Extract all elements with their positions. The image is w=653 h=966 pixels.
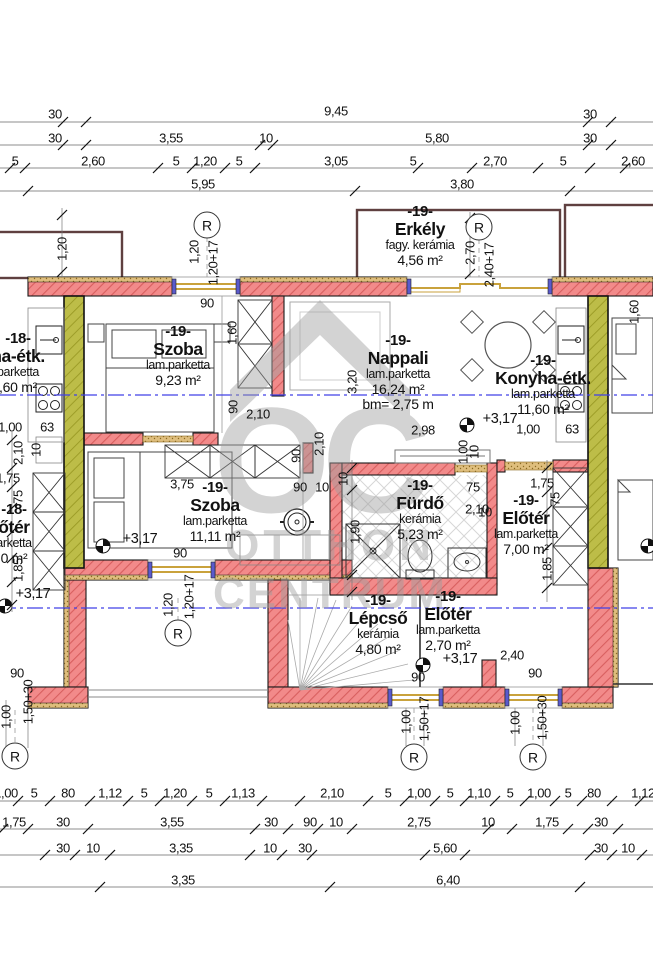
dim-label: 5,95 xyxy=(191,177,215,192)
room-number: -19- xyxy=(386,204,455,220)
room-finish: kerámia xyxy=(349,628,408,642)
room-finish: fagy. kerámia xyxy=(386,239,455,253)
dim-label: 5 xyxy=(173,154,180,169)
room-height: bm= 2,75 m xyxy=(362,397,433,412)
room-name: Erkély xyxy=(386,220,455,239)
dim-label: 90 xyxy=(226,400,241,414)
room-number: -19- xyxy=(396,478,444,494)
dim-label: 1,50+30 xyxy=(21,680,36,725)
dim-label: 3,75 xyxy=(170,477,194,492)
dim-label: 30 xyxy=(48,107,62,122)
dim-label: 3,05 xyxy=(324,154,348,169)
dim-label: 75 xyxy=(11,490,26,504)
dim-label: 1,00 xyxy=(407,786,431,801)
room-name: Lépcső xyxy=(349,609,408,628)
room-name: őtér xyxy=(0,518,32,537)
dim-label: 5 xyxy=(12,154,19,169)
dim-label: 3,35 xyxy=(171,873,195,888)
dim-label: 1,50+17 xyxy=(417,697,432,742)
room-area: 11,11 m² xyxy=(183,529,247,544)
grid-marker: R xyxy=(2,743,29,770)
dim-label: +3,17 xyxy=(443,651,478,667)
dim-label: 80 xyxy=(587,786,601,801)
dim-label: 2,10 xyxy=(320,786,344,801)
dim-label: 2,40 xyxy=(500,648,524,663)
room-number: -19- xyxy=(416,589,480,605)
dim-label: 10 xyxy=(478,505,492,520)
room-label-furdo: -19- Fürdő kerámia 5,23 m² xyxy=(396,478,444,542)
balcony-outlines xyxy=(0,205,653,278)
room-area: 4,56 m² xyxy=(386,253,455,268)
dim-label: 3,55 xyxy=(160,815,184,830)
dim-label: 90 xyxy=(10,666,24,681)
dim-label: 3,20 xyxy=(345,370,360,394)
dim-label: 1,75 xyxy=(535,815,559,830)
dim-label: 30 xyxy=(594,815,608,830)
dim-label: 5 xyxy=(560,154,567,169)
dim-label: 6,40 xyxy=(436,873,460,888)
dim-label: 1,85 xyxy=(540,557,555,581)
dim-label: 3,55 xyxy=(159,131,183,146)
dim-label: 30 xyxy=(264,815,278,830)
dim-label: 30 xyxy=(594,841,608,856)
room-finish: arketta xyxy=(0,537,32,551)
dim-label: 30 xyxy=(298,841,312,856)
grid-marker: R xyxy=(401,744,428,771)
dim-label: 3,35 xyxy=(169,841,193,856)
room-finish: kerámia xyxy=(396,513,444,527)
dim-label: 2,70 xyxy=(483,154,507,169)
dim-label: 1,00 xyxy=(527,786,551,801)
room-finish: lam.parketta xyxy=(362,368,433,382)
room-name: ha-étk. xyxy=(0,347,45,366)
room-finish: lam.parketta xyxy=(146,359,210,373)
dim-label: 1,00 xyxy=(508,711,523,735)
dim-label: 90 xyxy=(173,546,187,561)
dim-label: 9,45 xyxy=(324,104,348,119)
dim-label: 5,80 xyxy=(425,131,449,146)
dim-label: 10 xyxy=(259,131,273,146)
dim-label: 90 xyxy=(293,480,307,495)
dim-label: 63 xyxy=(565,422,579,437)
dim-label: 1,00 xyxy=(0,705,14,729)
room-area: 5,23 m² xyxy=(396,527,444,542)
dim-label: 80 xyxy=(61,786,75,801)
dim-label: 2,60 xyxy=(81,154,105,169)
room-number: -18- xyxy=(0,331,45,347)
dim-label: 5 xyxy=(206,786,213,801)
floorplan-canvas: OC OTTHON CENTRUM -19- Erkély fagy. kerá… xyxy=(0,0,653,966)
dim-label: 10 xyxy=(336,472,351,486)
dim-label: 1,85 xyxy=(11,558,26,582)
room-finish: lam.parketta xyxy=(416,624,480,638)
dim-label: 1,00 xyxy=(399,710,414,734)
dim-label: 10 xyxy=(315,480,329,495)
dim-label: 2,75 xyxy=(407,815,431,830)
room-number: -19- xyxy=(495,353,591,369)
dim-label: 10 xyxy=(481,815,495,830)
dim-label: 1,12 xyxy=(98,786,122,801)
dim-label: 10 xyxy=(263,841,277,856)
dim-label: 2,98 xyxy=(411,423,435,438)
dim-label: 5 xyxy=(410,154,417,169)
dim-label: +3,17 xyxy=(16,586,51,602)
room-label-nappali: -19- Nappali lam.parketta 16,24 m² bm= 2… xyxy=(362,333,433,412)
room-label-lepcso: -19- Lépcső kerámia 4,80 m² xyxy=(349,593,408,657)
dim-label: 5 xyxy=(31,786,38,801)
dim-label: 10 xyxy=(467,445,482,459)
dim-label: 1,13 xyxy=(231,786,255,801)
dim-label: 90 xyxy=(200,296,214,311)
dim-label: 2,70 xyxy=(463,241,478,265)
dim-label: 5 xyxy=(236,154,243,169)
dim-label: 1,90 xyxy=(348,520,363,544)
room-finish: lam.parketta xyxy=(495,388,591,402)
dim-label: 1,00 xyxy=(0,786,18,801)
dim-label: 5 xyxy=(565,786,572,801)
dim-label: 1,20 xyxy=(55,237,70,261)
dim-label: 1,20 xyxy=(161,593,176,617)
room-number: -19- xyxy=(349,593,408,609)
room-name: Előtér xyxy=(416,605,480,624)
dim-label: 90 xyxy=(303,815,317,830)
room-name: Konyha-étk. xyxy=(495,369,591,388)
room-area: 7,00 m² xyxy=(494,542,558,557)
room-label-erkely: -19- Erkély fagy. kerámia 4,56 m² xyxy=(386,204,455,268)
dim-label: 5 xyxy=(507,786,514,801)
dim-label: 30 xyxy=(583,107,597,122)
room-area: 9,23 m² xyxy=(146,373,210,388)
dim-label: 30 xyxy=(56,841,70,856)
room-label-neighbor-konyha: -18- ha-étk. parketta ,60 m² xyxy=(0,331,45,395)
dim-label: 1,75 xyxy=(530,476,554,491)
dim-label: 1,20+17 xyxy=(206,241,221,286)
dim-label: 90 xyxy=(528,666,542,681)
room-finish: lam.parketta xyxy=(183,515,247,529)
grid-marker: R xyxy=(194,212,221,239)
grid-marker: R xyxy=(165,620,192,647)
dim-label: 1,60 xyxy=(225,321,240,345)
dim-label: 1,75 xyxy=(2,815,26,830)
dim-label: 30 xyxy=(583,131,597,146)
dim-label: 2,40+17 xyxy=(482,243,497,288)
dim-label: 3,80 xyxy=(450,177,474,192)
grid-marker: R xyxy=(520,744,547,771)
dim-label: 2,10 xyxy=(11,441,26,465)
dim-label: 1,00 xyxy=(0,420,22,435)
dim-label: 2,10 xyxy=(312,432,327,456)
dim-label: 90 xyxy=(289,449,304,463)
room-label-szoba-1: -19- Szoba lam.parketta 9,23 m² xyxy=(146,324,210,388)
room-name: Előtér xyxy=(494,509,558,528)
dim-label: 1,20+17 xyxy=(182,575,197,620)
room-label-konyha: -19- Konyha-étk. lam.parketta 11,60 m² xyxy=(495,353,591,417)
room-number: -19- xyxy=(362,333,433,349)
room-name: Nappali xyxy=(362,349,433,368)
room-finish: lam.parketta xyxy=(494,528,558,542)
dim-label: +3,17 xyxy=(123,531,158,547)
room-number: -18- xyxy=(0,502,32,518)
room-area: 16,24 m² xyxy=(362,382,433,397)
dim-label: 2,10 xyxy=(246,407,270,422)
dim-label: 1,12 xyxy=(631,786,653,801)
grid-marker: R xyxy=(466,214,493,241)
room-finish: parketta xyxy=(0,366,45,380)
room-label-eloter-2: -19- Előtér lam.parketta 2,70 m² xyxy=(416,589,480,653)
dim-label: +3,17 xyxy=(483,411,518,427)
room-name: Fürdő xyxy=(396,494,444,513)
dim-label: 10 xyxy=(29,443,44,457)
dim-label: 1,10 xyxy=(467,786,491,801)
dim-label: 5 xyxy=(447,786,454,801)
dim-label: 10 xyxy=(621,841,635,856)
dim-label: 75 xyxy=(548,492,563,506)
room-label-neighbor-eloter: -18- őtér arketta 0 m² xyxy=(0,502,32,566)
room-name: Szoba xyxy=(146,340,210,359)
dim-label: 63 xyxy=(40,420,54,435)
dim-label: 30 xyxy=(48,131,62,146)
dim-label: 1,20 xyxy=(193,154,217,169)
dim-label: 10 xyxy=(86,841,100,856)
dim-label: 90 xyxy=(411,670,425,685)
dim-label: 5 xyxy=(141,786,148,801)
dim-label: 1,00 xyxy=(516,422,540,437)
room-number: -19- xyxy=(146,324,210,340)
dim-label: 1,20 xyxy=(163,786,187,801)
dim-label: 10 xyxy=(329,815,343,830)
dim-label: 1,50+30 xyxy=(535,696,550,741)
dim-label: 1,75 xyxy=(0,471,20,486)
dim-label: 2,60 xyxy=(621,154,645,169)
room-area: ,60 m² xyxy=(0,380,45,395)
dim-label: 5,60 xyxy=(433,841,457,856)
dim-label: 1,60 xyxy=(627,300,642,324)
dim-label: 1,20 xyxy=(187,240,202,264)
dim-label: 5 xyxy=(385,786,392,801)
watermark-line2: CENTRUM xyxy=(213,569,447,618)
dim-label: 30 xyxy=(56,815,70,830)
room-name: Szoba xyxy=(183,496,247,515)
room-area: 4,80 m² xyxy=(349,642,408,657)
dim-label: 75 xyxy=(466,480,480,495)
